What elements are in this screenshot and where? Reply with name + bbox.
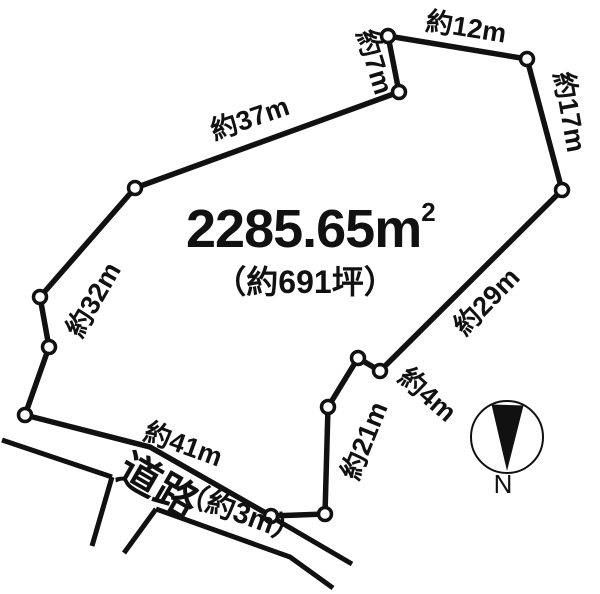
vertex-marker [319, 508, 332, 521]
vertex-marker [556, 184, 569, 197]
vertex-marker [374, 365, 387, 378]
vertex-marker [43, 341, 56, 354]
vertex-marker [352, 352, 365, 365]
land-plot-diagram: 約37m 約7m 約12m 約17m 約29m 約4m 約21m 約32m 約4… [0, 0, 600, 594]
vertex-marker [322, 401, 335, 414]
area-value: 2285.65m [186, 199, 421, 259]
north-label: N [494, 471, 513, 497]
vertex-marker [521, 53, 534, 66]
side-road-left-edge [92, 477, 112, 546]
vertex-marker [129, 182, 142, 195]
vertex-marker [34, 291, 47, 304]
road-lower-edge-left [2, 440, 112, 477]
north-arrow [471, 401, 543, 473]
side-road-right-edge [124, 509, 156, 553]
area-tsubo-label: （約691坪） [214, 266, 395, 298]
vertex-marker [19, 409, 32, 422]
area-exponent: 2 [421, 197, 435, 227]
area-label: 2285.65m2 [186, 202, 436, 256]
